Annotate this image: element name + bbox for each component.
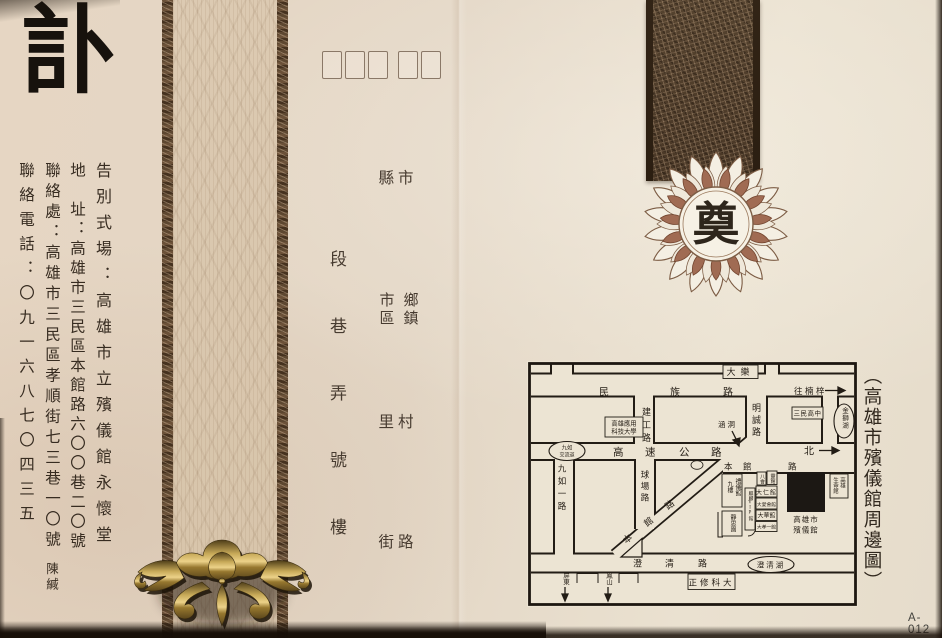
- place-label-life-hall-r: 高雄: [839, 476, 846, 490]
- postal-code-box: [368, 51, 388, 79]
- photo-edge-right: [935, 0, 942, 638]
- place-label-dale: 大樂: [726, 366, 754, 377]
- place-label-jingsi: 靜思園: [729, 513, 736, 533]
- place-label-kuas-1: 高雄應用: [611, 419, 636, 428]
- address-township: 鄉鎮: [400, 292, 421, 328]
- place-label-life-hall-l: 生命館: [832, 476, 839, 495]
- place-label-culvert: 涵洞: [718, 420, 737, 429]
- ornament-gold: [135, 540, 310, 626]
- road-label-qiuchang: 球場路: [640, 469, 650, 504]
- place-label-daren: 大仁館: [756, 489, 777, 497]
- postal-code-box: [421, 51, 441, 79]
- place-label-interchange-2: 交流道: [559, 452, 574, 459]
- postal-code-boxes: [322, 51, 444, 79]
- postal-code-box: [398, 51, 418, 79]
- place-label-funeral-2: 殯儀館: [793, 525, 819, 535]
- address-village: 里村: [374, 410, 422, 432]
- road-label-jiangong: 建工路: [641, 406, 651, 446]
- place-label-ritual-hall-r: 禮儀館: [734, 477, 741, 497]
- card-fold-line: [451, 0, 467, 638]
- map-title: （高雄市殯儀館周邊圖）: [858, 366, 884, 598]
- postal-code-box: [345, 51, 365, 79]
- contact-place-line: 聯絡處：高雄市三民區孝順街七三巷一〇號陳緘: [38, 162, 64, 632]
- address-county-city: 縣市: [374, 166, 422, 188]
- funeral-notice-card: 訃 告別式場：高雄市立殯儀館永懷堂 地 址：高雄市三民區本館路六〇〇巷二〇號 聯…: [0, 0, 942, 638]
- funeral-home-block: [787, 472, 825, 512]
- place-label-vip: 麒麟VIP館: [747, 490, 753, 522]
- dian-character: 奠: [693, 199, 740, 250]
- place-label-funeral-1: 高雄市: [793, 514, 819, 524]
- contact-place-text: 聯絡處：高雄市三民區孝順街七三巷一〇號: [43, 162, 60, 552]
- road-label-mingcheng: 明誠路: [751, 403, 761, 439]
- place-label-interchange-1: 九如: [562, 444, 573, 452]
- place-label-kuas-2: 科技大學: [611, 427, 636, 436]
- funeral-address-line: 地 址：高雄市三民區本館路六〇〇巷二〇號: [64, 162, 89, 632]
- address-township-district: 市區 鄉鎮: [374, 292, 422, 328]
- place-label-mini-2: 靈館: [770, 474, 776, 485]
- contact-phone-line: 聯絡電話：〇九一六八七〇四三五: [13, 162, 38, 632]
- place-label-chengqing-lake: 澄清湖: [757, 560, 786, 570]
- place-label-daai: 大愛會館: [757, 501, 776, 508]
- photo-edge-top-left: [0, 0, 120, 24]
- photo-edge-bottom-left: [0, 621, 546, 638]
- gold-floral-ornament: [132, 534, 312, 630]
- dian-seal-medallion: 奠: [639, 147, 793, 301]
- funeral-info-columns: 告別式場：高雄市立殯儀館永懷堂 地 址：高雄市三民區本館路六〇〇巷二〇號 聯絡處…: [12, 162, 114, 632]
- place-label-sanmin-hs: 三民高中: [794, 409, 822, 418]
- place-label-ritual-hall-l: 九樓: [726, 480, 733, 494]
- address-section-column: 段巷弄號樓: [324, 250, 349, 585]
- address-street-road: 街路: [374, 530, 422, 552]
- place-label-chengshiu: 正修科大: [688, 578, 734, 588]
- contact-name: 陳緘: [44, 562, 58, 593]
- place-label-mini-1: 八會: [759, 474, 765, 485]
- direction-label-north: 北: [804, 446, 814, 458]
- direction-label-nanzi: 往楠梓: [794, 386, 827, 396]
- vicinity-map: 民族路 高速公路 澄清路 本館路 本館路 建工路 明誠路 九如一路 球場路 大樂…: [527, 361, 858, 607]
- photo-edge-left: [0, 418, 5, 638]
- address-district: 市區: [376, 292, 397, 328]
- place-label-daxiao: 大孝一館: [757, 524, 776, 531]
- postal-code-box: [322, 51, 342, 79]
- place-label-dahua: 大華館: [757, 512, 775, 520]
- funeral-venue-line: 告別式場：高雄市立殯儀館永懷堂: [89, 162, 114, 632]
- road-label-jiuru-first: 九如一路: [557, 464, 567, 514]
